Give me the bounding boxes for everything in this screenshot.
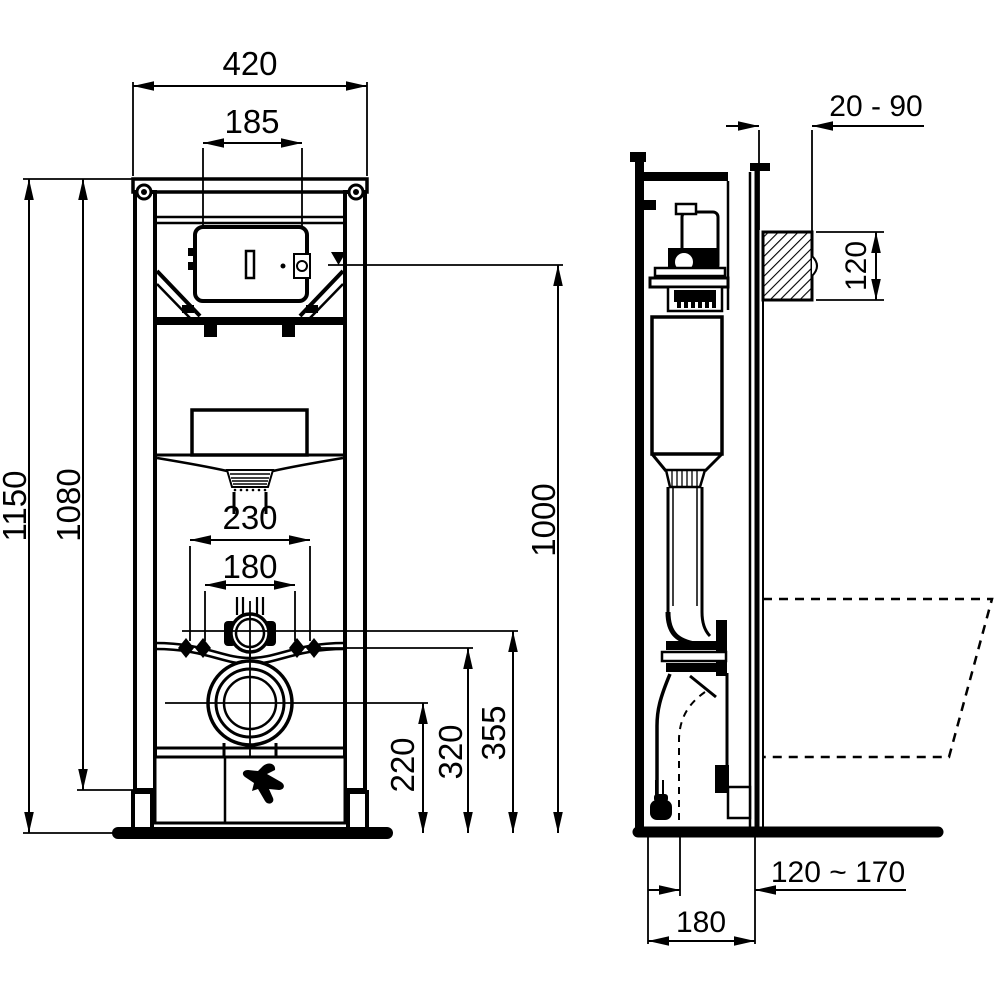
adjustable-foot-left <box>133 792 152 829</box>
dim-label-180: 180 <box>222 548 277 585</box>
actuation-slot <box>246 251 254 278</box>
dim-label-355: 355 <box>475 705 512 760</box>
dim-label-1080: 1080 <box>50 468 87 541</box>
dim-label-180-side: 180 <box>676 906 726 939</box>
dim-label-420: 420 <box>222 45 277 82</box>
back-rail <box>635 158 644 830</box>
wall-sleeve <box>728 787 750 818</box>
right-clip-ring <box>297 261 307 271</box>
frame-top-bar <box>133 179 367 192</box>
hanging-tab-left <box>204 325 217 337</box>
front-top-cap <box>750 163 770 171</box>
mid-crossbar <box>155 317 345 325</box>
left-nub-top <box>188 248 195 256</box>
cistern-lower-box <box>192 410 307 455</box>
hanging-tab-right <box>282 325 295 337</box>
frame-right-rail <box>345 192 365 790</box>
frame-left-rail <box>135 192 155 790</box>
dim-label-220: 220 <box>384 737 421 792</box>
dim-label-120-170: 120 ~ 170 <box>771 856 905 889</box>
dim-label-185: 185 <box>224 103 279 140</box>
rail-bracket-nub <box>644 200 656 210</box>
dim-label-20-90: 20 - 90 <box>829 90 922 123</box>
adjustable-foot-right <box>348 792 367 829</box>
top-beam <box>643 172 728 181</box>
dim-label-230: 230 <box>222 499 277 536</box>
corner-screw-left <box>137 185 151 199</box>
cistern-tank-side <box>652 317 722 454</box>
dim-label-1000: 1000 <box>525 483 562 556</box>
corner-screw-right <box>349 185 363 199</box>
plate-dot <box>281 264 286 269</box>
actuation-shaft-hatched <box>763 232 812 300</box>
technical-drawing-canvas: 230 180 <box>0 0 1000 1000</box>
bottom-panel <box>155 757 345 823</box>
left-nub-bottom <box>188 262 195 270</box>
neck-connector-ribs <box>666 470 705 487</box>
dim-label-1150: 1150 <box>0 471 33 542</box>
dim-label-320: 320 <box>432 724 469 779</box>
dim-label-120: 120 <box>840 241 873 291</box>
